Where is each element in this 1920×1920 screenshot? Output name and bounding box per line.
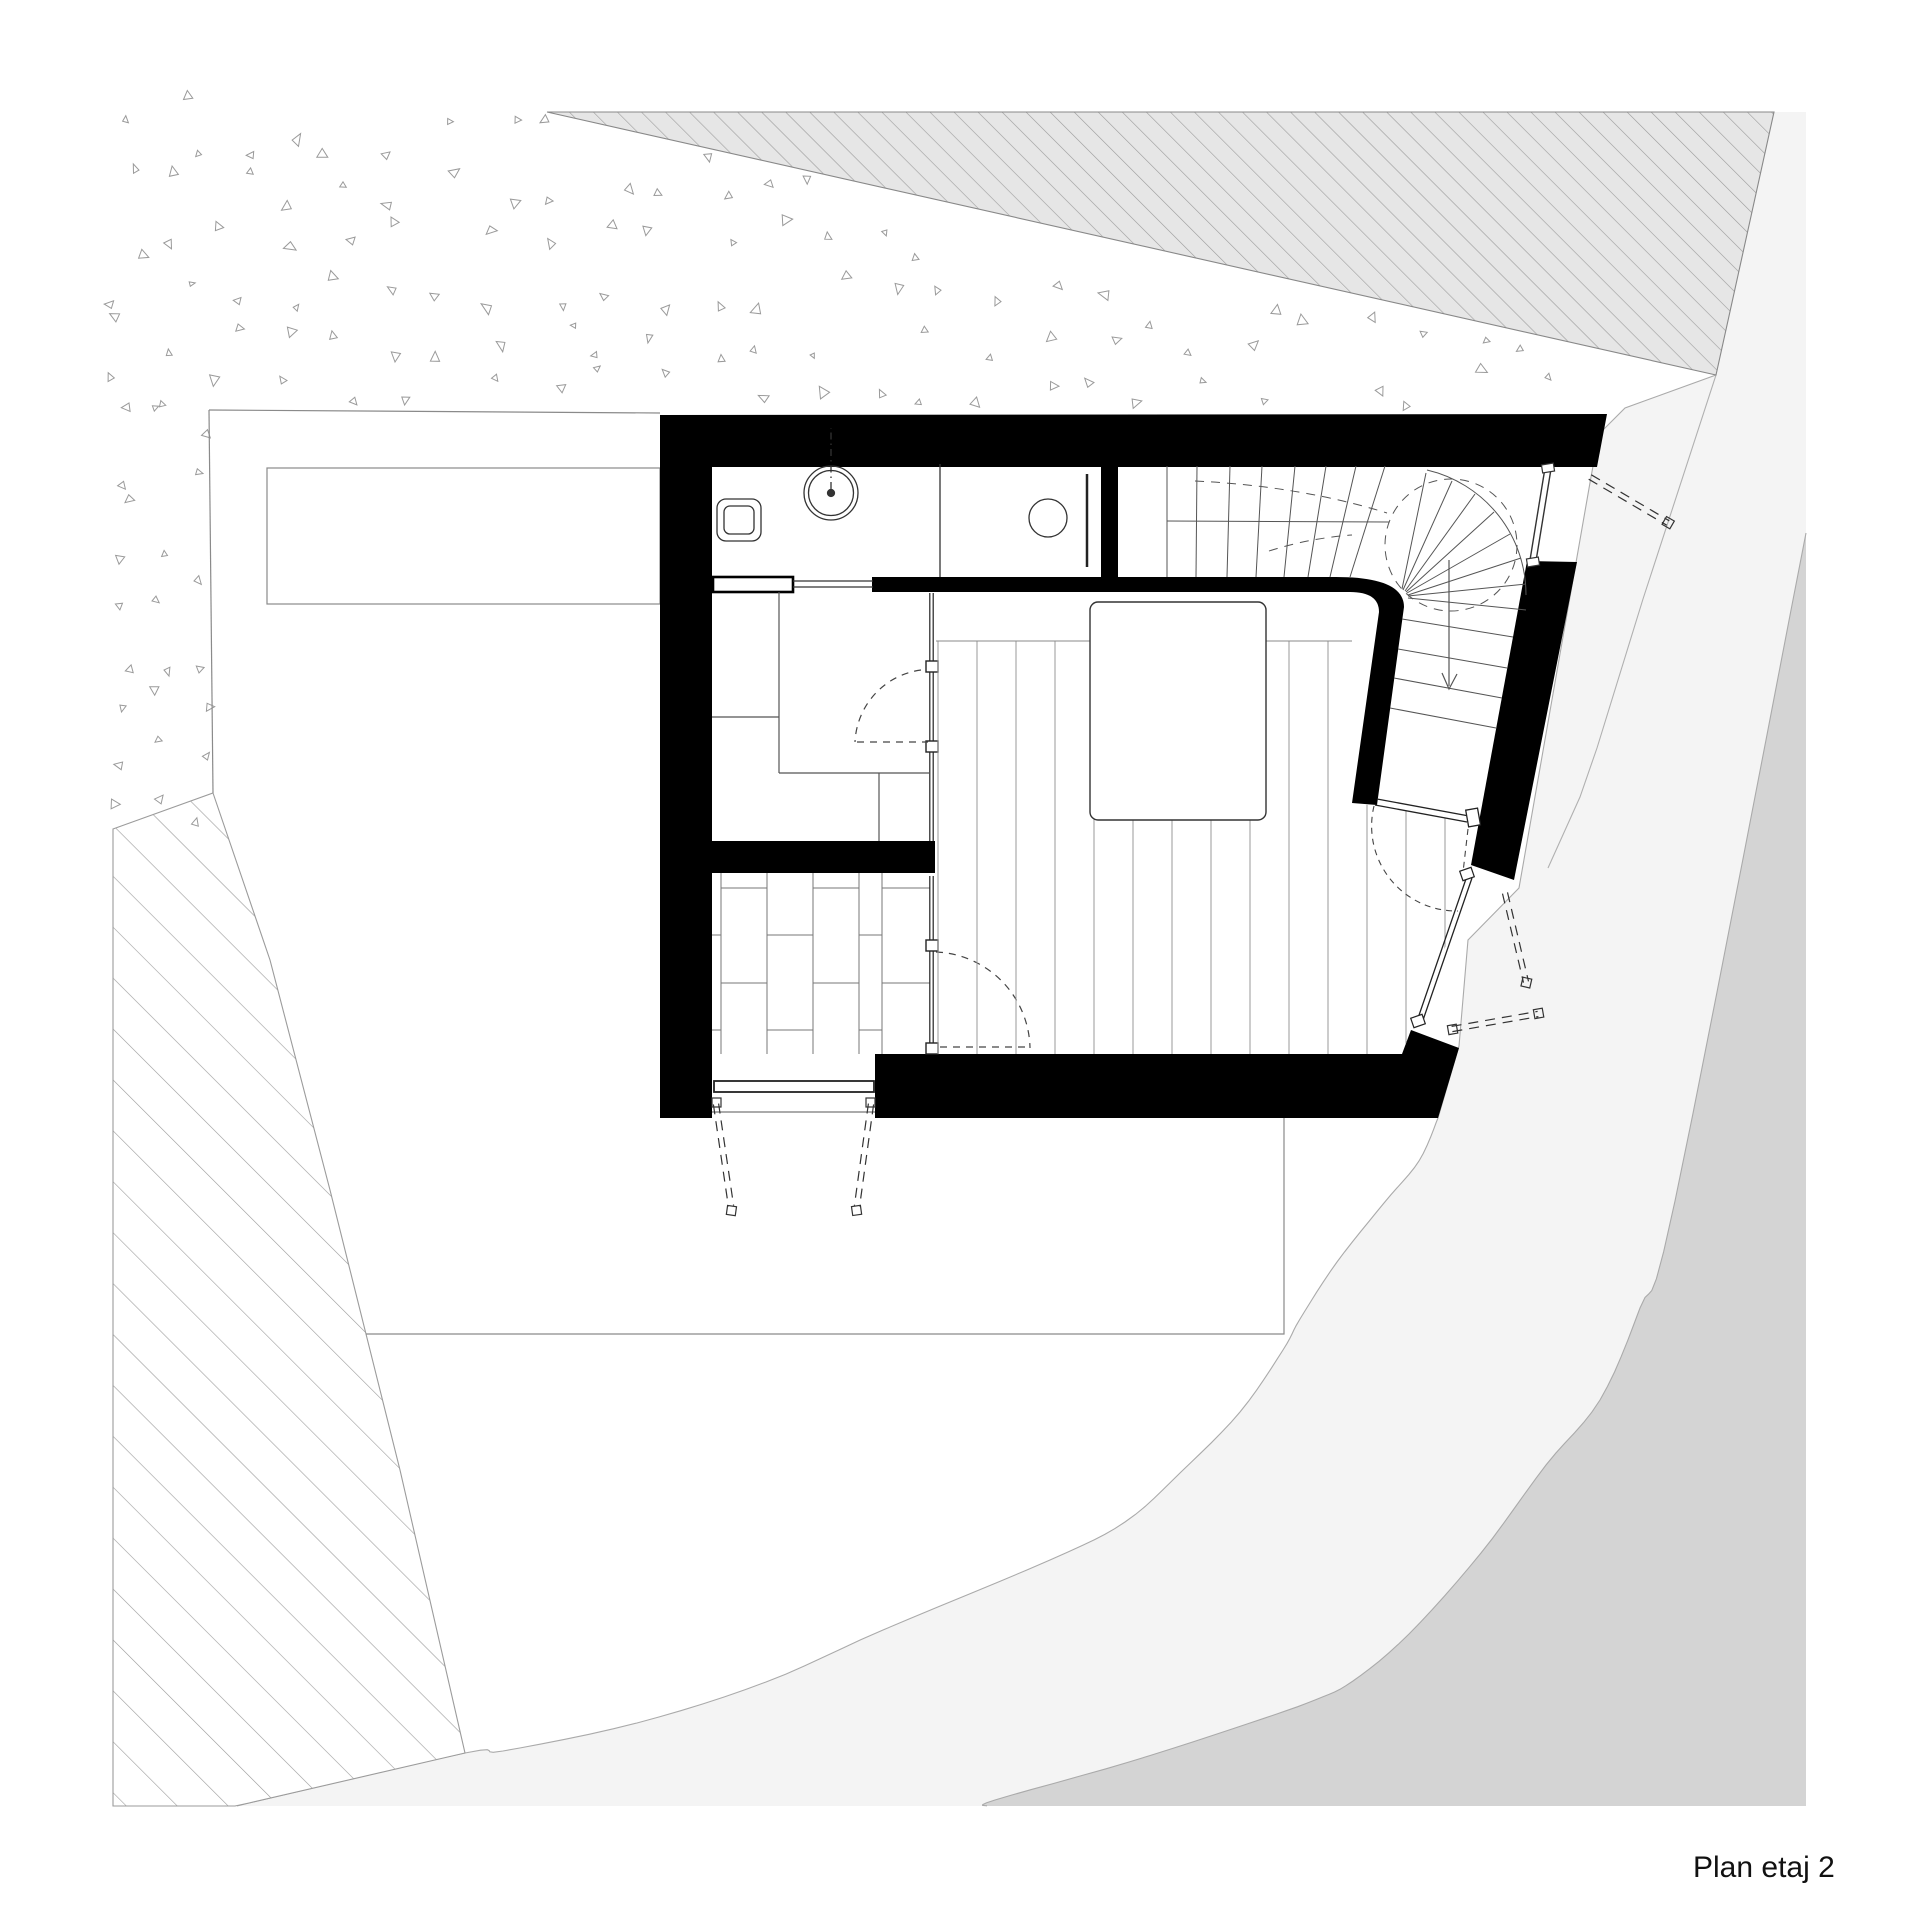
svg-text:Plan etaj 2: Plan etaj 2	[1693, 1851, 1835, 1884]
